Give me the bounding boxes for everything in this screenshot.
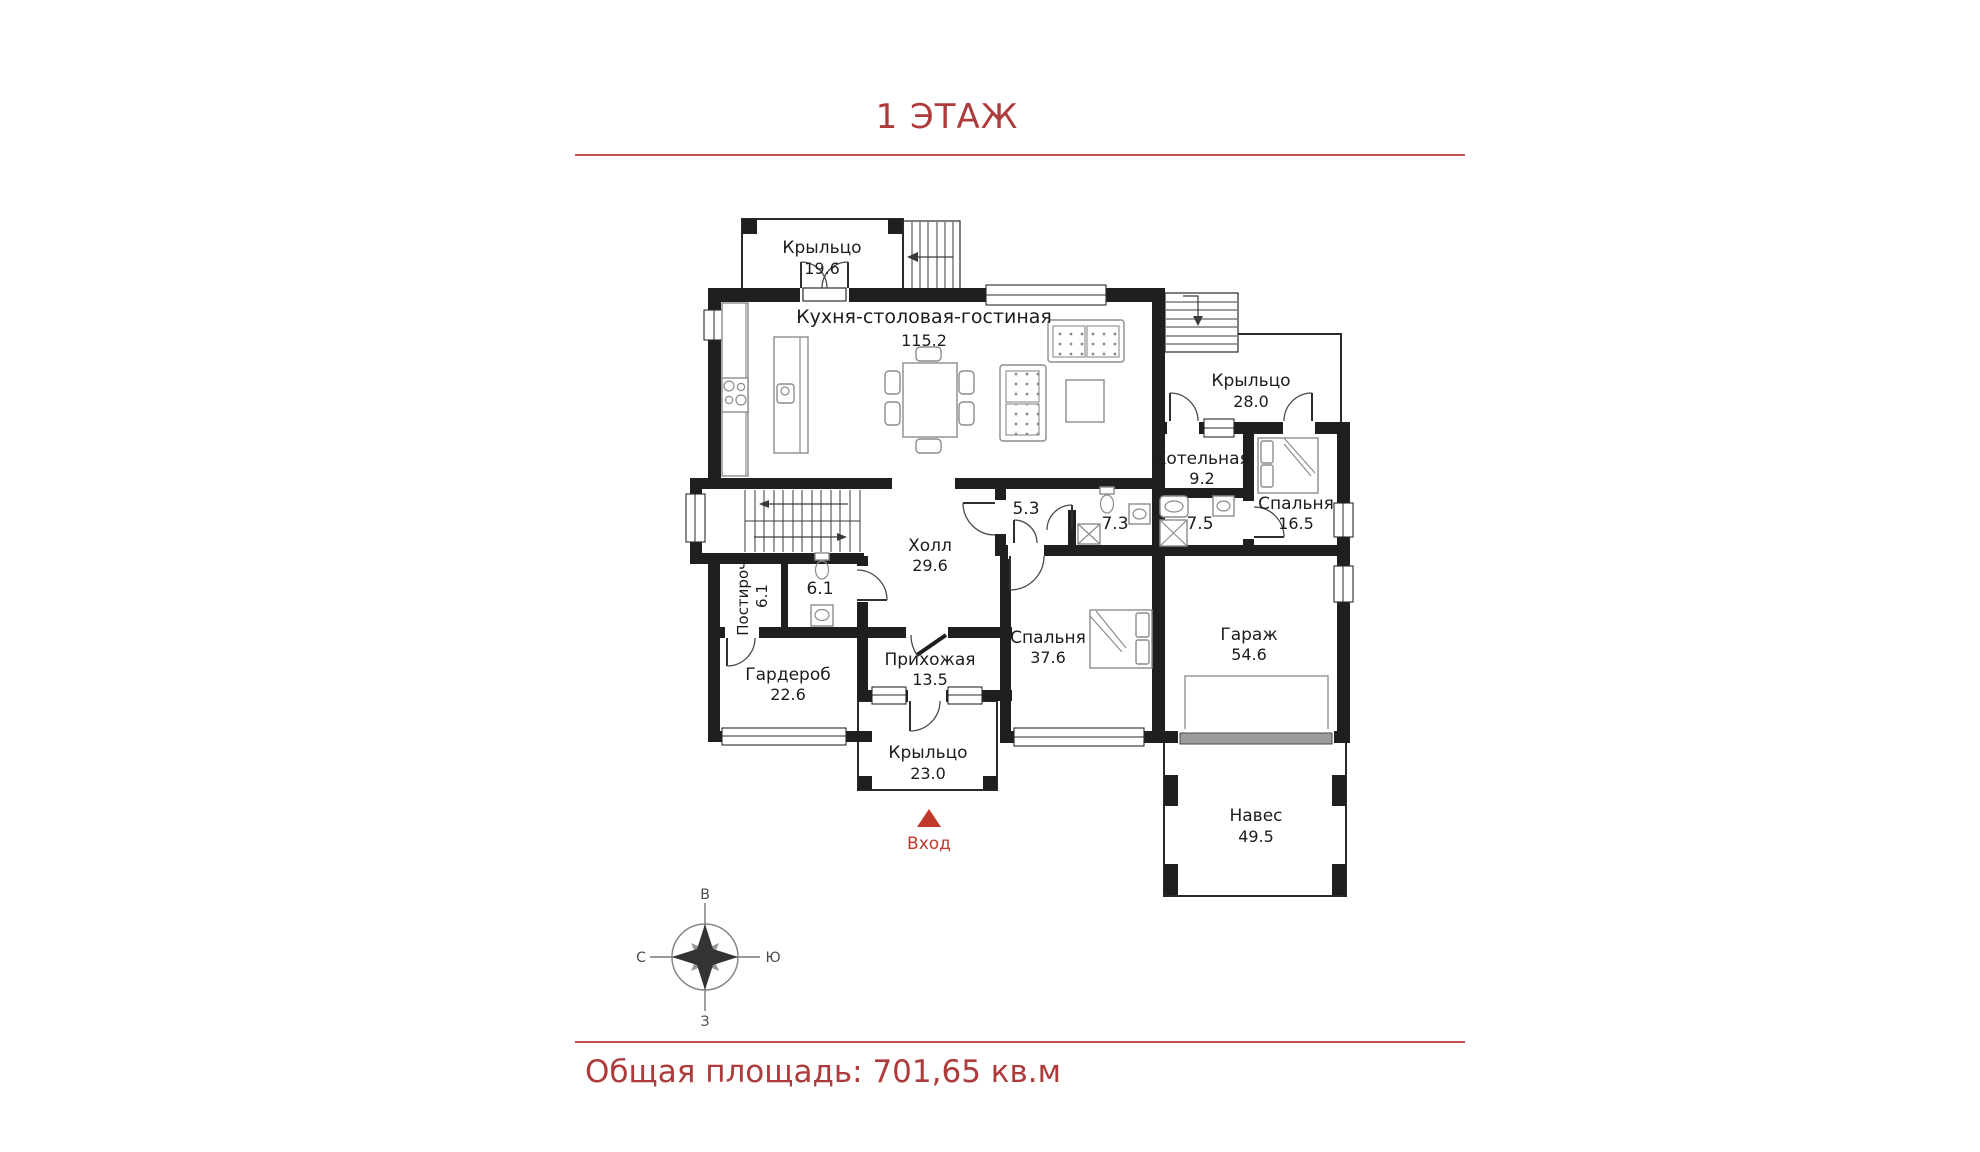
room-label-porch-top: Крыльцо 19.6 — [782, 238, 861, 278]
car-space — [1185, 676, 1328, 737]
room-label-porch-right: Крыльцо 28.0 — [1211, 371, 1290, 411]
bed-bedroom16 — [1258, 438, 1318, 493]
wardrobe-door — [727, 638, 755, 666]
svg-text:Кухня-столовая-гостиная: Кухня-столовая-гостиная — [796, 306, 1052, 328]
room-label-porch-bottom: Крыльцо 23.0 — [888, 743, 967, 783]
svg-text:115.2: 115.2 — [901, 331, 947, 350]
svg-text:Прихожая: Прихожая — [884, 650, 975, 670]
room-label-bath75: 7.5 — [1186, 514, 1213, 534]
svg-text:22.6: 22.6 — [770, 685, 806, 704]
stove — [722, 378, 748, 412]
bed-bedroom37 — [1090, 610, 1152, 668]
dining-table — [885, 347, 974, 453]
room-label-wc53: 5.3 — [1012, 499, 1039, 519]
room-label-bath73: 7.3 — [1101, 514, 1128, 534]
entry-to-porch-door — [910, 701, 940, 731]
room-label-canopy: Навес 49.5 — [1229, 806, 1282, 846]
coffee-table — [1066, 380, 1104, 422]
svg-text:29.6: 29.6 — [912, 556, 948, 575]
room-label-garage: Гараж 54.6 — [1220, 625, 1277, 664]
room-label-boiler: Котельная 9.2 — [1154, 449, 1249, 488]
svg-text:9.2: 9.2 — [1189, 469, 1214, 488]
svg-text:Спальня: Спальня — [1258, 494, 1334, 514]
svg-text:19.6: 19.6 — [804, 259, 840, 278]
room-label-bedroom16: Спальня 16.5 — [1258, 494, 1334, 533]
entrance-arrow-icon — [917, 809, 941, 827]
room-label-bedroom37: Спальня 37.6 — [1010, 628, 1086, 667]
entrance-marker: Вход — [907, 809, 951, 854]
svg-text:Спальня: Спальня — [1010, 628, 1086, 648]
svg-text:Гараж: Гараж — [1220, 625, 1277, 645]
garage-door — [1180, 733, 1332, 744]
svg-text:Холл: Холл — [908, 536, 952, 556]
svg-text:Крыльцо: Крыльцо — [1211, 371, 1290, 391]
hall-to-wc53-door — [963, 503, 995, 535]
room-label-hall: Холл 29.6 — [908, 536, 952, 575]
bedroom37-door — [1010, 556, 1044, 590]
kitchen-island — [774, 337, 808, 453]
floor-plan-page: 1 ЭТАЖ Общая площадь: 701,65 кв.м — [0, 0, 1980, 1152]
room-label-wardrobe: Гардероб 22.6 — [745, 665, 830, 704]
svg-text:49.5: 49.5 — [1238, 827, 1274, 846]
entrance-label: Вход — [907, 834, 951, 854]
svg-text:Крыльцо: Крыльцо — [888, 743, 967, 763]
compass-label-left: С — [636, 950, 646, 966]
compass-label-top: В — [700, 887, 710, 903]
svg-text:37.6: 37.6 — [1030, 648, 1066, 667]
room-label-entry: Прихожая 13.5 — [884, 650, 975, 689]
boiler-exterior-door — [1170, 393, 1198, 421]
compass-rose: В Ю С З — [636, 887, 780, 1030]
interior-staircase — [745, 490, 860, 552]
room-label-wc61: 6.1 — [806, 579, 833, 599]
svg-text:Навес: Навес — [1229, 806, 1282, 826]
compass-label-bottom: З — [701, 1014, 710, 1030]
svg-text:23.0: 23.0 — [910, 764, 946, 783]
svg-text:54.6: 54.6 — [1231, 645, 1267, 664]
compass-label-right: Ю — [765, 950, 780, 966]
sofa-top — [1048, 320, 1124, 362]
exterior-stairs-top-right — [1166, 296, 1237, 344]
svg-text:Крыльцо: Крыльцо — [782, 238, 861, 258]
kitchen-furniture — [722, 303, 1124, 476]
room-label-laundry: Постироч. 6.1 — [734, 556, 771, 636]
sofa-right — [1000, 365, 1046, 441]
svg-text:16.5: 16.5 — [1278, 514, 1314, 533]
bedroom16-exterior-door — [1284, 393, 1312, 421]
room-label-kitchen: Кухня-столовая-гостиная 115.2 — [796, 306, 1052, 350]
floor-plan-drawing: Крыльцо 19.6 Кухня-столовая-гостиная 115… — [0, 0, 1980, 1152]
svg-text:Котельная: Котельная — [1154, 449, 1249, 469]
svg-text:6.1: 6.1 — [753, 584, 771, 608]
svg-text:28.0: 28.0 — [1233, 392, 1269, 411]
garage-contents — [1178, 676, 1334, 745]
wc53-inner-door — [1014, 520, 1037, 543]
svg-text:Гардероб: Гардероб — [745, 665, 830, 685]
exterior-stairs-top-left — [907, 222, 953, 289]
svg-text:13.5: 13.5 — [912, 670, 948, 689]
svg-text:Постироч.: Постироч. — [734, 556, 752, 636]
